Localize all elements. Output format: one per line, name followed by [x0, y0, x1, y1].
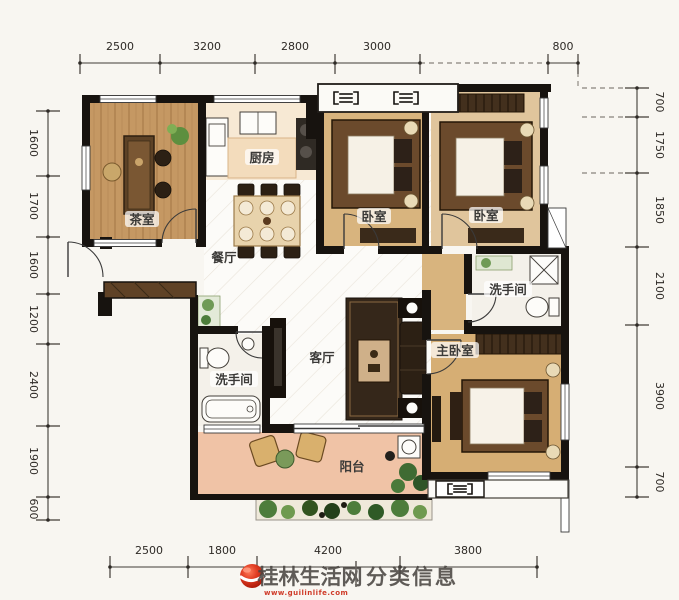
dim-top-1: 3200	[193, 40, 221, 53]
sink	[242, 338, 254, 350]
dim-right-0: 700	[653, 92, 666, 113]
dining-chair	[238, 184, 254, 196]
watermark-url: www.guilinlife.com	[264, 589, 348, 597]
dim-right-1: 1750	[653, 131, 666, 159]
dim-bottom-0: 2500	[135, 544, 163, 557]
sliding-door	[294, 424, 424, 433]
plant-icon	[399, 463, 417, 481]
dim-bottom-2: 4200	[314, 544, 342, 557]
dim-bottom-1: 1800	[208, 544, 236, 557]
tv-stand	[432, 396, 441, 442]
dim-left-0: 1600	[27, 129, 40, 157]
room-label-bedroom-1: 卧室	[361, 209, 387, 224]
dimension-left: 1600 1700 1600 1200 2400 1900 600	[27, 109, 60, 522]
floor-plan: 茶室 厨房 餐厅 卧室 卧室 客厅 洗手间 洗手间 主卧室 阳台 2500 32…	[0, 0, 679, 600]
washing-machine	[398, 436, 420, 458]
toilet-tank	[549, 298, 559, 316]
dresser	[360, 228, 416, 243]
watermark-site-name: 桂林生活网	[257, 565, 363, 589]
room-label-balcony: 阳台	[339, 459, 364, 474]
dim-left-6: 600	[27, 499, 40, 520]
tea-chair	[155, 182, 171, 198]
dimension-top: 2500 3200 2800 3000 800	[78, 40, 580, 88]
watermark-tagline: 分类信息	[366, 565, 458, 589]
planter-box	[256, 498, 432, 520]
ac-platform-top	[318, 84, 458, 112]
stool	[103, 163, 121, 181]
kitchen-furniture	[206, 112, 316, 178]
dimension-right: 700 1750 1850 2100 3900 700	[582, 86, 666, 499]
dim-left-2: 1600	[27, 251, 40, 279]
room-label-bathroom-2: 洗手间	[489, 282, 527, 297]
watermark: 桂林生活网 分类信息 www.guilinlife.com	[240, 561, 458, 597]
toilet	[526, 297, 548, 317]
tea-chair	[155, 150, 171, 166]
tv	[274, 328, 282, 386]
dim-top-4: 800	[553, 40, 574, 53]
dim-right-3: 2100	[653, 272, 666, 300]
room-label-kitchen: 厨房	[249, 150, 274, 165]
nightstand-lamp	[404, 121, 418, 135]
room-label-master-bedroom: 主卧室	[436, 343, 474, 358]
toilet	[207, 348, 229, 368]
room-label-bathroom-1: 洗手间	[215, 372, 253, 387]
nightstand-lamp	[404, 194, 418, 208]
dining-furniture	[234, 184, 300, 258]
dim-left-5: 1900	[27, 447, 40, 475]
dim-right-4: 3900	[653, 382, 666, 410]
dim-bottom-3: 3800	[454, 544, 482, 557]
room-label-bedroom-2: 卧室	[473, 208, 499, 223]
room-label-tea-room: 茶室	[128, 212, 155, 227]
room-label-living: 客厅	[308, 350, 335, 365]
dim-left-3: 1200	[27, 305, 40, 333]
dim-left-1: 1700	[27, 192, 40, 220]
dim-top-3: 3000	[363, 40, 391, 53]
room-label-dining: 餐厅	[210, 250, 237, 265]
dim-top-0: 2500	[106, 40, 134, 53]
coffee-table	[358, 340, 390, 382]
dim-top-2: 2800	[281, 40, 309, 53]
dim-right-5: 700	[653, 472, 666, 493]
dim-right-2: 1850	[653, 196, 666, 224]
ac-platform-bottom	[436, 481, 484, 497]
bench	[450, 392, 462, 440]
lounge-chair	[295, 431, 327, 463]
side-table	[276, 450, 294, 468]
wardrobe	[476, 334, 562, 354]
wardrobe	[456, 94, 524, 112]
floorplan-page: 茶室 厨房 餐厅 卧室 卧室 客厅 洗手间 洗手间 主卧室 阳台 2500 32…	[0, 0, 679, 600]
dim-left-4: 2400	[27, 371, 40, 399]
